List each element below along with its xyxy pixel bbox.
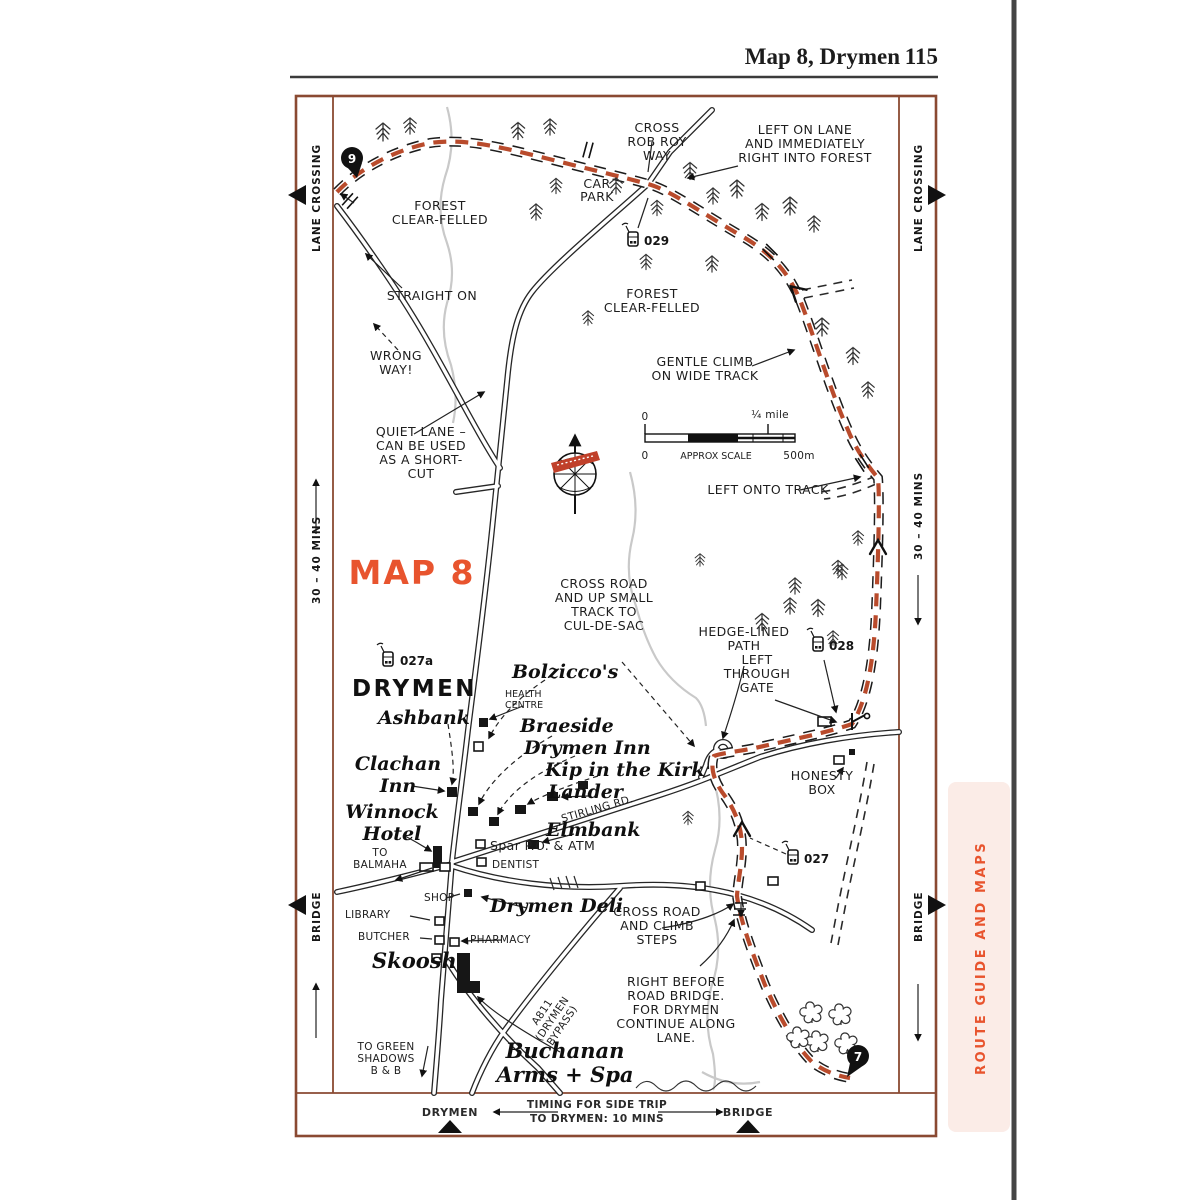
label-library: LIBRARY <box>345 909 391 921</box>
sidebar-label: ROUTE GUIDE AND MAPS <box>974 841 989 1075</box>
note-left-through-gate: LEFTTHROUGHGATE <box>723 652 791 695</box>
route-guide-sidebar: ROUTE GUIDE AND MAPS <box>948 782 1010 1132</box>
gps-waypoint-icon <box>377 643 393 666</box>
health-centre-building <box>479 718 488 727</box>
label-buchanan-arms: BuchananArms + Spa <box>494 1038 633 1087</box>
scale-approx-label: APPROX SCALE <box>680 451 751 462</box>
note-to-balmaha: TOBALMAHA <box>353 847 407 871</box>
pin-number: 9 <box>348 152 356 166</box>
note-gentle-climb: GENTLE CLIMBON WIDE TRACK <box>652 354 759 383</box>
margin-timing: 30 – 40 MINS <box>913 472 925 560</box>
page-number: 115 <box>905 44 938 69</box>
band-bridge: BRIDGE <box>723 1106 773 1119</box>
pin-number: 7 <box>854 1050 862 1064</box>
label-forest-clear-felled: FORESTCLEAR-FELLED <box>604 286 700 315</box>
right-margin: LANE CROSSING 30 – 40 MINS BRIDGE <box>913 144 946 1040</box>
label-winnock-hotel: WinnockHotel <box>345 801 438 845</box>
note-wrong-way: WRONGWAY! <box>370 348 422 377</box>
label-drymen-inn: Drymen Inn <box>523 737 651 759</box>
label-drymen-deli: Drymen Deli <box>489 895 623 917</box>
note-left-on-lane: LEFT ON LANEAND IMMEDIATELYRIGHT INTO FO… <box>738 122 872 165</box>
margin-lane-crossing: LANE CROSSING <box>913 144 925 252</box>
label-pharmacy: PHARMACY <box>470 934 531 946</box>
guidebook-map-page: Map 8, Drymen 115 ROUTE GUIDE AND MAPS <box>0 0 1200 1200</box>
label-shop: SHOP <box>424 892 454 904</box>
note-hedge-lined-path: HEDGE-LINEDPATH <box>699 624 790 653</box>
conifer-tree-icon <box>376 123 390 141</box>
note-to-green-shadows: TO GREENSHADOWSB & B <box>357 1041 415 1077</box>
label-forest-clear-felled: FORESTCLEAR-FELLED <box>392 198 488 227</box>
margin-timing: 30 – 40 MINS <box>311 516 323 604</box>
note-cross-road-climb-steps: CROSS ROADAND CLIMBSTEPS <box>613 904 701 947</box>
label-dentist: DENTIST <box>492 859 540 871</box>
bridge-marker-icon <box>736 1120 760 1133</box>
label-bolziccos: Bolzicco's <box>511 661 619 683</box>
label-butcher: BUTCHER <box>358 931 410 943</box>
stile-icon <box>342 192 358 210</box>
label-health-centre: HEALTHCENTRE <box>505 689 543 711</box>
label-skoosh: Skoosh <box>372 948 457 973</box>
map-pin-7: 7 <box>847 1045 869 1077</box>
waypoint-label: 027a <box>400 654 433 668</box>
bottom-band: DRYMEN TIMING FOR SIDE TRIPTO DRYMEN: 10… <box>422 1099 773 1133</box>
left-margin: LANE CROSSING 30 – 40 MINS BRIDGE <box>288 144 323 1038</box>
band-drymen: DRYMEN <box>422 1106 478 1119</box>
note-quiet-lane: QUIET LANE –CAN BE USEDAS A SHORT-CUT <box>376 424 466 481</box>
label-lander: Lander <box>547 781 625 803</box>
building <box>447 787 457 797</box>
honesty-box-building <box>834 756 844 764</box>
margin-bridge: BRIDGE <box>913 891 925 942</box>
compass-rose <box>551 436 600 514</box>
drymen-marker-icon <box>438 1120 462 1133</box>
scale-bar: 0 ¼ mile 0 APPROX SCALE 500m <box>642 409 815 462</box>
building-outline <box>474 742 483 751</box>
buchanan-arms-building <box>457 953 480 993</box>
waypoint-label: 028 <box>829 639 854 653</box>
note-cross-road-cul-de-sac: CROSS ROADAND UP SMALLTRACK TOCUL-DE-SAC <box>555 576 653 633</box>
waypoint-label: 027 <box>804 852 829 866</box>
dashed-track <box>838 764 874 945</box>
label-drymen-town: DRYMEN <box>352 676 477 702</box>
bush-icon <box>800 1002 822 1023</box>
waypoint-label: 029 <box>644 234 669 248</box>
page-header: Map 8, Drymen 115 <box>290 44 938 77</box>
scale-zero-top: 0 <box>642 411 649 423</box>
scale-500m: 500m <box>783 450 814 462</box>
scale-zero-bottom: 0 <box>642 450 649 462</box>
page-title: Map 8, Drymen <box>745 44 900 69</box>
dentist-building <box>477 858 486 866</box>
label-braeside: Braeside <box>519 715 614 737</box>
label-honesty-box: HONESTYBOX <box>791 768 854 797</box>
gps-waypoint-icon <box>807 628 823 651</box>
label-car-park: CARPARK <box>580 176 614 204</box>
scale-quarter-mile: ¼ mile <box>751 409 789 421</box>
label-clachan-inn: ClachanInn <box>355 753 441 797</box>
note-right-before-road-bridge: RIGHT BEFOREROAD BRIDGE.FOR DRYMENCONTIN… <box>616 974 735 1045</box>
gps-waypoint-icon <box>622 223 638 246</box>
label-ashbank: Ashbank <box>376 707 470 729</box>
map-title: MAP 8 <box>348 553 475 592</box>
note-left-onto-track: LEFT ONTO TRACK <box>707 482 829 497</box>
label-spar: Spar P.O. & ATM <box>490 838 595 853</box>
note-straight-on: STRAIGHT ON <box>387 288 477 303</box>
spar-building <box>476 840 485 848</box>
label-kip-in-the-kirk: Kip in the Kirk <box>544 759 704 781</box>
note-cross-rob-roy-way: CROSSROB ROYWAY <box>627 120 686 163</box>
stile-icon <box>583 142 593 159</box>
margin-lane-crossing: LANE CROSSING <box>311 144 323 252</box>
margin-bridge: BRIDGE <box>311 891 323 942</box>
route-annotations: CROSSROB ROYWAY LEFT ON LANEAND IMMEDIAT… <box>348 120 871 1077</box>
gps-waypoint-icon <box>782 841 798 864</box>
